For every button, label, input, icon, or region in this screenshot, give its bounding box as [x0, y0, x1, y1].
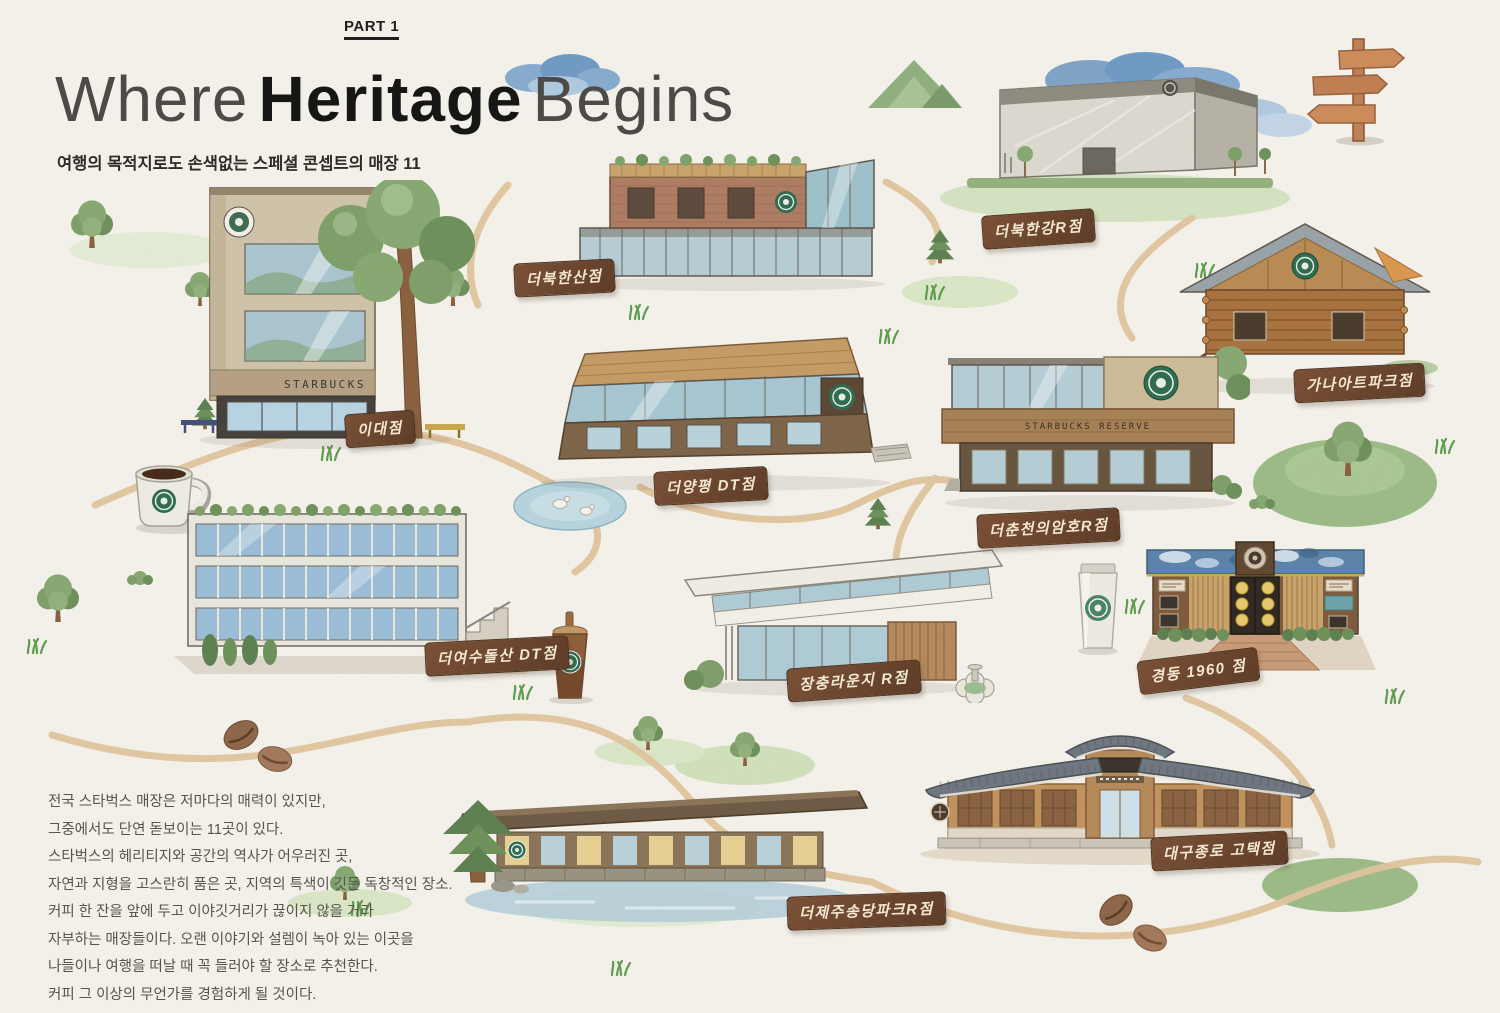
intro-line: 자연과 지형을 고스란히 품은 곳, 지역의 특색이 깃든 독창적인 장소.	[48, 872, 453, 900]
building-ewha-illustration: STARBUCKS	[175, 180, 475, 450]
page-title: WhereHeritageBegins	[55, 66, 734, 133]
coffee-beans-icon	[219, 715, 295, 775]
store-sign-daegu-jongro: 대구종로 고택점	[1150, 830, 1288, 871]
intro-line: 커피 그 이상의 무언가를 경험하게 될 것이다.	[48, 982, 453, 1010]
intro-line: 자부하는 매장들이다. 오랜 이야기와 설렘이 녹아 있는 이곳을	[48, 927, 453, 955]
building-bukhangang-illustration	[945, 48, 1295, 218]
title-word-heritage: Heritage	[259, 63, 523, 135]
intro-line: 나들이나 여행을 떠날 때 꼭 들러야 할 장소로 추천한다.	[48, 954, 453, 982]
store-sign-jeju-songdang: 더제주송당파크R점	[786, 891, 946, 931]
intro-line: 전국 스타벅스 매장은 저마다의 매력이 있지만,	[48, 789, 453, 817]
magazine-page: PART 1 WhereHeritageBegins 여행의 목적지로도 손색없…	[0, 0, 1500, 1013]
page-subtitle: 여행의 목적지로도 손색없는 스페셜 콘셉트의 매장 11	[57, 150, 421, 174]
pine-tree-icon	[865, 498, 891, 529]
title-word-begins: Begins	[533, 63, 735, 135]
store-sign-yangpyeong: 더양평 DT점	[653, 466, 768, 506]
store-sign-bukhansan: 더북한산점	[513, 258, 615, 297]
intro-line: 그중에서도 단연 돋보이는 11곳이 있다.	[48, 817, 453, 845]
coffee-beans-icon	[1094, 888, 1171, 956]
tumbler-icon	[1078, 564, 1118, 655]
signpost-icon	[1308, 39, 1404, 146]
building-chuncheon-illustration: STARBUCKS RESERVE	[930, 333, 1250, 528]
title-word-where: Where	[55, 63, 249, 135]
intro-line: 스타벅스의 헤리티지와 공간의 역사가 어우러진 곳,	[48, 844, 453, 872]
part-label: PART 1	[344, 18, 399, 40]
store-sign-gana-art-park: 가나아트파크점	[1293, 363, 1426, 404]
intro-line: 커피 한 잔을 앞에 두고 이야깃거리가 끊이지 않을 거라	[48, 899, 453, 927]
intro-paragraph: 전국 스타벅스 매장은 저마다의 매력이 있지만, 그중에서도 단연 돋보이는 …	[48, 789, 453, 1009]
store-sign-ewha: 이대점	[344, 410, 416, 449]
pine-tree-icon	[926, 230, 955, 264]
building-sign-text: STARBUCKS RESERVE	[1025, 422, 1151, 432]
building-sign-text: STARBUCKS	[284, 378, 366, 391]
bush-icon	[127, 571, 153, 585]
tree-icon	[37, 574, 79, 622]
